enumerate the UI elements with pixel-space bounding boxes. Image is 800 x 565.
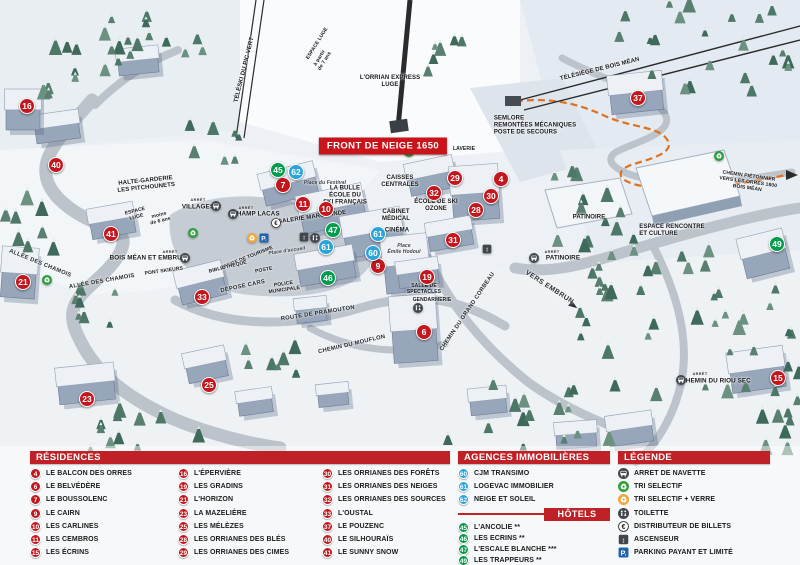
legend-residences: RÉSIDENCES 4LE BALCON DES ORRES6LE BELVÉ… [30,451,450,559]
svg-text:€: € [622,524,626,531]
legend-item-label: LES GRADINS [194,483,243,490]
legend-item: 10LES CARLINES [30,520,178,533]
svg-text:♻: ♻ [44,277,50,285]
marker-number-badge: 11 [30,534,41,545]
marker-number-badge: 15 [30,547,41,558]
map-label: TÉLÉSIÈGE DE BOIS MÉAN [560,57,641,84]
legend-item: 37LE POUZENC [322,520,450,533]
marker-number-badge: 31 [322,481,333,492]
legend-item-label: LE CAIRN [46,510,80,517]
svg-text:↕: ↕ [485,247,488,254]
legend-item: 46LES ECRINS ** [458,533,610,544]
svg-text:♻: ♻ [716,153,722,161]
map-label: PATINOIRE [573,214,606,221]
marker-number-badge: 29 [178,547,189,558]
legend-item-label: LE BOUSSOLENC [46,496,108,503]
map-marker-46: 46 [320,270,336,286]
legend-item: 62NEIGE ET SOLEIL [458,493,610,506]
map-label: Place Émile Hodoul [387,244,420,256]
legend-item: 31LES ORRIANES DES NEIGES [322,480,450,493]
map-marker-15: 15 [770,370,786,386]
map-marker-37: 37 [630,90,646,106]
legend-item-label: LES MÉLÈZES [194,523,244,530]
hotels-header: HÔTELS [544,508,610,521]
legend-item-label: CJM TRANSIMO [474,470,529,477]
legend-item-label: L'HORIZON [194,496,233,503]
svg-text:♻: ♻ [620,483,627,492]
legend-item: 16L'ÉPERVIÈRE [178,467,322,480]
map-marker-19: 19 [419,269,435,285]
map-label: L'ORRIAN EXPRESS LUGE [360,75,420,89]
front-de-neige-badge: FRONT DE NEIGE 1650 [319,138,447,155]
map-label: LAVERIE [453,147,475,153]
svg-text:♻: ♻ [249,235,255,243]
svg-text:♻: ♻ [620,496,627,505]
map-marker-25: 25 [201,377,217,393]
map-marker-62: 62 [288,164,304,180]
map-label: ARRÊT [692,372,707,376]
legend-item: ♻TRI SELECTIF [618,480,770,493]
legende-rows: ARRET DE NAVETTE♻TRI SELECTIF♻TRI SELECT… [618,467,770,559]
legend-item-label: L'ANCOLIE ** [474,524,520,531]
legend-item-label: LES ÉCRINS [46,549,89,556]
svg-text:P.: P. [621,548,627,557]
map-label: ALLÉE DES CHAMOIS [69,273,136,291]
legend-item-label: LES ORRIANES DES SOURCES [338,496,446,503]
legend-item-label: ASCENSEUR [634,536,679,543]
map-marker-30: 30 [483,188,499,204]
resort-map: ESPACE LUGEà partir de 7 ansTÉLÉSKI DU P… [0,0,800,565]
svg-text:€: € [274,220,278,227]
map-marker-4: 4 [493,171,509,187]
hotels-divider [458,513,544,515]
marker-number-badge: 37 [322,521,333,532]
map-label: VERS EMBRUN [523,269,575,306]
marker-number-badge: 45 [458,522,469,533]
legend-item: 4LE BALCON DES ORRES [30,467,178,480]
legend-item: €DISTRIBUTEUR DE BILLETS [618,520,770,533]
legend-item-label: LE POUZENC [338,523,384,530]
bus-icon [618,468,629,479]
euro-icon: € [271,218,281,228]
marker-number-badge: 61 [458,481,469,492]
legend-item: 47L'ESCALE BLANCHE *** [458,544,610,555]
marker-number-badge: 47 [458,544,469,555]
map-label: CHEMIN PIÉTONNIER VERS LES ORRES 1800 BO… [718,170,778,196]
map-label: ÉCOLE DE SKI OZONE [414,199,458,213]
legend-item-label: L'ÉPERVIÈRE [194,470,241,477]
map-label: ESPACE LUGE [124,207,147,223]
map-label: BOIS MÉAN ET EMBRUN [110,254,187,261]
svg-text:↕: ↕ [622,535,626,544]
marker-number-badge: 4 [30,468,41,479]
recycle-icon: ♻ [618,481,629,492]
legend-item-label: LE BELVÉDÈRE [46,483,100,490]
marker-number-badge: 41 [322,547,333,558]
map-marker-61: 61 [370,226,386,242]
wc-icon [618,508,629,519]
bus-icon [228,209,238,219]
bus-icon [180,253,190,263]
map-marker-47: 47 [325,222,341,238]
residences-columns: 4LE BALCON DES ORRES6LE BELVÉDÈRE7LE BOU… [30,467,450,559]
legend-item: 61LOGEVAC IMMOBILIER [458,480,610,493]
recycle-icon: ♻ [188,228,198,238]
marker-number-badge: 40 [322,534,333,545]
map-label: POSTE [255,267,273,276]
map-label: PONT SKIEURS [144,266,183,277]
legend-item: 49LES TRAPPEURS ** [458,555,610,565]
legend-item-label: LE SILHOURAÏS [338,536,393,543]
marker-number-badge: 9 [30,508,41,519]
map-label: ESPACE RENCONTRE ET CULTURE [639,224,705,238]
wc-icon [310,233,320,243]
legend-item: 6LE BELVÉDÈRE [30,480,178,493]
svg-text:P.: P. [261,236,267,243]
map-label: TÉLÉSKI DU PIC VERT [233,37,256,104]
legend-item-label: LES ORRIANES DES FORÊTS [338,470,439,477]
svg-text:↕: ↕ [302,235,305,242]
map-marker-60: 60 [365,245,381,261]
legend-agences: AGENCES IMMOBILIÈRES 60CJM TRANSIMO61LOG… [458,451,610,565]
legend-item-label: L'ESCALE BLANCHE *** [474,546,557,553]
legende-header: LÉGENDE [618,451,770,464]
legend-item: 11LES CEMBROS [30,533,178,546]
bus-icon [529,253,539,263]
bus-icon [676,375,686,385]
legend-item-label: LE SUNNY SNOW [338,549,398,556]
marker-number-badge: 25 [178,521,189,532]
map-label: VILLAGES [182,203,214,210]
legend-item-label: LA MAZELIÈRE [194,510,247,517]
marker-number-badge: 60 [458,468,469,479]
map-marker-6: 6 [416,324,432,340]
marker-number-badge: 28 [178,534,189,545]
legend-item: 9LE CAIRN [30,507,178,520]
map-label: HALTE-GARDERIE LES PITCHOUNETS [116,175,175,195]
map-label: CABINET MÉDICAL [382,209,410,223]
residences-column-3: 30LES ORRIANES DES FORÊTS31LES ORRIANES … [322,467,450,559]
legend-item: 7LE BOUSSOLENC [30,493,178,506]
map-marker-28: 28 [468,202,484,218]
euro-icon: € [618,521,629,532]
marker-number-badge: 32 [322,494,333,505]
legend-item-label: LOGEVAC IMMOBILIER [474,483,554,490]
legend-item-label: ARRET DE NAVETTE [634,470,705,477]
map-label: CHAMP LACAS [232,210,280,217]
legend-item: 25LES MÉLÈZES [178,520,322,533]
marker-number-badge: 49 [458,555,469,565]
parking-icon: P. [259,233,269,243]
map-label: DÉPOSE CARS [220,279,266,295]
legend-item: 21L'HORIZON [178,493,322,506]
map-label: Place d'accueil [268,246,306,257]
map-label: CINÉMA [385,227,409,234]
legend-item: 41LE SUNNY SNOW [322,546,450,559]
map-label: moins de 6 ans [148,211,171,227]
hotels-rows: 45L'ANCOLIE **46LES ECRINS **47L'ESCALE … [458,522,610,565]
elevator-icon: ↕ [299,232,309,242]
hotels-header-row: HÔTELS [458,508,610,521]
marker-number-badge: 46 [458,533,469,544]
legend-item-label: TRI SELECTIF + VERRE [634,496,715,503]
legend-item-label: NEIGE ET SOLEIL [474,496,535,503]
legend-item: 28LES ORRIANES DES BLÉS [178,533,322,546]
legend-item: 60CJM TRANSIMO [458,467,610,480]
recycle-icon: ♻ [42,275,52,285]
marker-number-badge: 16 [178,468,189,479]
marker-number-badge: 23 [178,508,189,519]
marker-number-badge: 19 [178,481,189,492]
bus-icon [211,201,221,211]
map-label: SEMLORE REMONTÉES MÉCANIQUES POSTE DE SE… [494,115,576,136]
legend-item-label: LES CARLINES [46,523,99,530]
legend-item: 33L'OUSTAL [322,507,450,520]
map-marker-45: 45 [270,162,286,178]
map-marker-61: 61 [318,239,334,255]
residences-column-1: 4LE BALCON DES ORRES6LE BELVÉDÈRE7LE BOU… [30,467,178,559]
marker-number-badge: 7 [30,494,41,505]
map-marker-32: 32 [426,185,442,201]
marker-number-badge: 10 [30,521,41,532]
legend-item: 32LES ORRIANES DES SOURCES [322,493,450,506]
legend-item: 45L'ANCOLIE ** [458,522,610,533]
legend-item: ↕ASCENSEUR [618,533,770,546]
legend-item: ARRET DE NAVETTE [618,467,770,480]
map-label: PATINOIRE [546,254,580,261]
legend-item: TOILETTE [618,507,770,520]
map-label: CHEMIN DU RIOU SEC [681,377,751,384]
legend-item: 30LES ORRIANES DES FORÊTS [322,467,450,480]
marker-number-badge: 6 [30,481,41,492]
legend-item: 19LES GRADINS [178,480,322,493]
residences-column-2: 16L'ÉPERVIÈRE19LES GRADINS21L'HORIZON23L… [178,467,322,559]
legend-item-label: DISTRIBUTEUR DE BILLETS [634,523,731,530]
legend-item: 40LE SILHOURAÏS [322,533,450,546]
residences-header: RÉSIDENCES [30,451,450,464]
map-marker-11: 11 [295,196,311,212]
map-label: BIBLIOTHÈQUE [208,260,247,275]
map-label: CHEMIN DU GRAND CORBEAU [439,271,497,352]
map-marker-29: 29 [447,170,463,186]
map-label: CAISSES CENTRALES [381,175,419,189]
elevator-icon: ↕ [482,244,492,254]
legend-item: ♻TRI SELECTIF + VERRE [618,493,770,506]
map-marker-33: 33 [194,289,210,305]
legend-item-label: L'OUSTAL [338,510,373,517]
recycle-glass-icon: ♻ [618,494,629,505]
map-marker-23: 23 [79,391,95,407]
svg-text:♻: ♻ [190,230,196,238]
map-marker-10: 10 [318,201,334,217]
legend-symbols: LÉGENDE ARRET DE NAVETTE♻TRI SELECTIF♻TR… [618,451,770,559]
legend-item-label: LES CEMBROS [46,536,98,543]
legend-item-label: LES TRAPPEURS ** [474,557,542,564]
agences-rows: 60CJM TRANSIMO61LOGEVAC IMMOBILIER62NEIG… [458,467,610,507]
parking-icon: P. [618,547,629,558]
map-label: POLICE MUNICIPALE [267,280,300,296]
map-marker-7: 7 [275,177,291,193]
map-marker-41: 41 [103,226,119,242]
marker-number-badge: 33 [322,508,333,519]
legend-item-label: LES ORRIANES DES BLÉS [194,536,286,543]
map-label: ARRÊT [190,198,205,202]
legend-item: 23LA MAZELIÈRE [178,507,322,520]
legend-item: 29LES ORRIANES DES CIMES [178,546,322,559]
legend-item-label: LE BALCON DES ORRES [46,470,132,477]
legend-item-label: TOILETTE [634,510,669,517]
recycle-glass-icon: ♻ [247,233,257,243]
map-marker-49: 49 [769,236,785,252]
legend-item-label: LES ORRIANES DES NEIGES [338,483,438,490]
map-marker-40: 40 [48,157,64,173]
map-label: ROUTE DE PRAMOUTON [280,305,355,323]
legend-item-label: TRI SELECTIF [634,483,682,490]
map-marker-21: 21 [15,274,31,290]
recycle-icon: ♻ [714,151,724,161]
map-label: SALLE DE SPECTACLES [407,284,441,296]
legend-item-label: LES ECRINS ** [474,535,525,542]
map-marker-31: 31 [445,232,461,248]
legend-item: P.PARKING PAYANT ET LIMITÉ [618,546,770,559]
legend-item: 15LES ÉCRINS [30,546,178,559]
marker-number-badge: 30 [322,468,333,479]
legend-item-label: LES ORRIANES DES CIMES [194,549,289,556]
legend-item-label: PARKING PAYANT ET LIMITÉ [634,549,733,556]
marker-number-badge: 62 [458,494,469,505]
marker-number-badge: 21 [178,494,189,505]
map-marker-16: 16 [19,98,35,114]
wc-icon [413,303,423,313]
elevator-icon: ↕ [618,534,629,545]
agences-header: AGENCES IMMOBILIÈRES [458,451,610,464]
map-label: CHEMIN DU MOUFLON [318,334,387,356]
